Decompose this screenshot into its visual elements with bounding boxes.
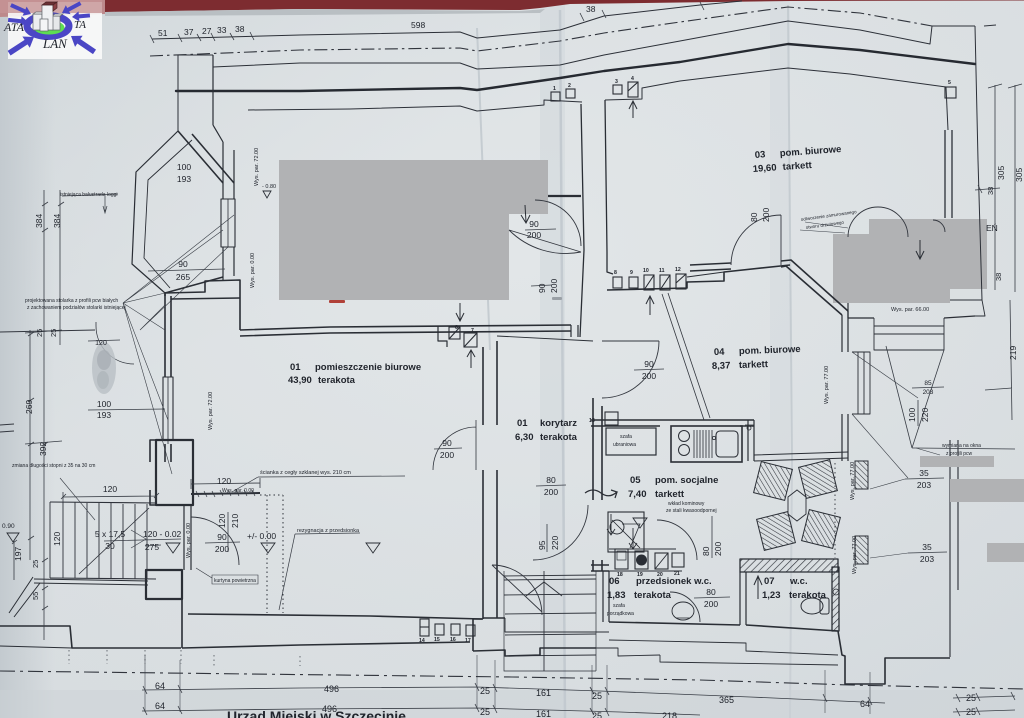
- svg-text:ze stali kwasoodpornej: ze stali kwasoodpornej: [666, 508, 717, 514]
- svg-text:90: 90: [537, 283, 547, 293]
- svg-text:25: 25: [592, 691, 602, 701]
- svg-text:Wys. par. 0.00: Wys. par. 0.00: [186, 523, 192, 558]
- svg-text:05: 05: [630, 475, 641, 486]
- svg-text:pomieszczenie biurowe: pomieszczenie biurowe: [315, 362, 421, 373]
- svg-text:15: 15: [434, 637, 440, 643]
- svg-text:z profili pcw: z profili pcw: [946, 451, 973, 457]
- svg-text:38: 38: [586, 4, 596, 14]
- svg-text:25: 25: [31, 560, 40, 568]
- svg-text:2: 2: [568, 83, 571, 89]
- svg-text:zmiana długości stopni z 35 na: zmiana długości stopni z 35 na 30 cm: [12, 463, 95, 469]
- svg-text:90: 90: [217, 532, 227, 542]
- svg-text:90: 90: [644, 359, 654, 369]
- svg-text:01: 01: [517, 418, 528, 429]
- svg-text:3: 3: [615, 79, 618, 85]
- svg-text:365: 365: [719, 695, 734, 705]
- svg-text:200: 200: [704, 599, 718, 609]
- svg-text:90: 90: [178, 259, 188, 269]
- svg-text:269: 269: [24, 400, 34, 414]
- svg-text:19: 19: [637, 572, 643, 578]
- svg-text:210: 210: [230, 514, 240, 528]
- svg-text:30: 30: [105, 541, 115, 551]
- svg-text:200: 200: [440, 450, 454, 460]
- svg-text:219: 219: [1008, 346, 1018, 360]
- svg-text:1: 1: [553, 86, 556, 92]
- svg-text:EŃ: EŃ: [986, 223, 998, 233]
- svg-text:szafa: szafa: [620, 434, 632, 440]
- svg-text:25: 25: [966, 707, 976, 717]
- svg-text:200: 200: [761, 208, 771, 222]
- svg-text:55: 55: [31, 592, 40, 600]
- svg-text:16: 16: [450, 637, 456, 643]
- svg-text:projektowana stolarka z profil: projektowana stolarka z profili pcw biał…: [25, 298, 118, 304]
- svg-text:275: 275: [145, 542, 159, 552]
- svg-text:25: 25: [480, 707, 490, 717]
- svg-text:80: 80: [701, 546, 711, 556]
- svg-text:8,37: 8,37: [712, 360, 731, 372]
- svg-text:7: 7: [471, 328, 474, 334]
- svg-text:193: 193: [97, 410, 111, 420]
- svg-text:5: 5: [948, 80, 951, 86]
- svg-text:161: 161: [536, 688, 551, 698]
- svg-text:TA: TA: [74, 19, 86, 31]
- svg-text:pom. biurowe: pom. biurowe: [739, 344, 801, 357]
- svg-text:6,30: 6,30: [515, 432, 534, 443]
- svg-text:wkład kominowy: wkład kominowy: [668, 501, 705, 507]
- svg-text:ubraniowa: ubraniowa: [613, 442, 636, 448]
- svg-text:43,90: 43,90: [288, 375, 312, 386]
- svg-text:rezygnacja z przedsionka: rezygnacja z przedsionka: [297, 528, 360, 534]
- svg-text:120: 120: [103, 484, 117, 494]
- svg-text:+/- 0.00: +/- 0.00: [247, 531, 276, 541]
- svg-text:Wys. par. 0.00: Wys. par. 0.00: [222, 488, 254, 494]
- svg-text:18: 18: [617, 572, 623, 578]
- svg-text:terakota: terakota: [318, 375, 356, 386]
- svg-text:80: 80: [706, 587, 716, 597]
- svg-text:200: 200: [642, 371, 656, 381]
- svg-text:4: 4: [631, 76, 634, 82]
- svg-text:203: 203: [917, 480, 931, 490]
- svg-text:ATA: ATA: [3, 20, 25, 34]
- svg-text:terakota: terakota: [789, 590, 827, 601]
- svg-text:14: 14: [419, 638, 425, 644]
- svg-text:80: 80: [546, 475, 556, 485]
- svg-text:tarkett: tarkett: [739, 359, 769, 371]
- svg-text:200: 200: [215, 544, 229, 554]
- svg-text:z zachowaniem podziałów stolar: z zachowaniem podziałów stolarki istniej…: [27, 305, 126, 311]
- svg-text:01: 01: [290, 362, 301, 373]
- svg-text:120: 120: [217, 514, 227, 528]
- svg-text:100: 100: [177, 162, 191, 172]
- svg-text:90: 90: [442, 438, 452, 448]
- svg-text:392: 392: [38, 442, 48, 456]
- svg-text:100: 100: [97, 399, 111, 409]
- svg-text:9: 9: [630, 270, 633, 276]
- svg-text:64: 64: [860, 699, 870, 709]
- svg-text:terakota: terakota: [540, 432, 578, 443]
- svg-text:120: 120: [52, 532, 62, 546]
- svg-text:pom. socjalne: pom. socjalne: [655, 475, 718, 486]
- svg-text:7,40: 7,40: [628, 489, 647, 500]
- svg-text:200: 200: [544, 487, 558, 497]
- svg-text:38: 38: [994, 273, 1003, 281]
- svg-text:0.90: 0.90: [2, 523, 15, 530]
- svg-text:Wys. par. 77.00: Wys. par. 77.00: [850, 462, 856, 500]
- svg-text:85: 85: [924, 380, 932, 387]
- svg-text:Urząd Miejski w Szczecinie: Urząd Miejski w Szczecinie: [227, 708, 406, 718]
- svg-text:10: 10: [643, 268, 649, 274]
- svg-text:80: 80: [749, 212, 759, 222]
- svg-text:Wys. par. 77.00: Wys. par. 77.00: [824, 366, 830, 404]
- svg-text:384: 384: [52, 214, 62, 228]
- svg-text:38: 38: [986, 187, 995, 195]
- svg-text:19,60: 19,60: [752, 162, 776, 175]
- svg-text:LAN: LAN: [42, 36, 68, 51]
- svg-text:03: 03: [754, 149, 765, 161]
- svg-text:8: 8: [614, 270, 617, 276]
- svg-text:64: 64: [155, 701, 165, 711]
- svg-text:6: 6: [455, 325, 458, 331]
- svg-text:1,23: 1,23: [762, 590, 781, 601]
- svg-text:5 x 17,5: 5 x 17,5: [95, 529, 126, 539]
- svg-text:w.c.: w.c.: [789, 576, 808, 587]
- svg-text:203: 203: [920, 554, 934, 564]
- svg-text:35: 35: [919, 468, 929, 478]
- svg-text:- 0.80: - 0.80: [262, 184, 276, 190]
- svg-text:203: 203: [923, 389, 934, 396]
- svg-text:90: 90: [529, 219, 539, 229]
- svg-text:istniejąca balustrada loggi: istniejąca balustrada loggi: [60, 192, 118, 198]
- svg-text:384: 384: [34, 214, 44, 228]
- svg-text:200: 200: [549, 279, 559, 293]
- svg-text:120: 120: [95, 340, 107, 347]
- svg-text:95: 95: [537, 540, 547, 550]
- svg-text:25: 25: [966, 693, 976, 703]
- svg-text:1,83: 1,83: [607, 590, 626, 601]
- svg-text:13: 13: [589, 418, 595, 424]
- svg-text:25: 25: [49, 329, 58, 337]
- svg-text:38: 38: [235, 24, 245, 34]
- svg-text:37: 37: [184, 27, 194, 37]
- svg-text:17: 17: [465, 638, 471, 644]
- svg-text:tarkett: tarkett: [655, 489, 685, 500]
- svg-text:51: 51: [158, 28, 168, 38]
- svg-text:04: 04: [714, 347, 726, 358]
- svg-text:25: 25: [35, 329, 44, 337]
- svg-text:120 - 0.02: 120 - 0.02: [143, 529, 182, 539]
- svg-text:200: 200: [713, 542, 723, 556]
- svg-text:496: 496: [324, 684, 339, 694]
- svg-text:tarkett: tarkett: [782, 160, 813, 173]
- svg-text:07: 07: [764, 576, 775, 587]
- svg-text:35: 35: [922, 542, 932, 552]
- svg-text:Wys. par. 72.00: Wys. par. 72.00: [208, 392, 214, 430]
- svg-text:100: 100: [907, 408, 917, 422]
- svg-text:200: 200: [527, 230, 541, 240]
- svg-text:porządkowa: porządkowa: [607, 611, 634, 617]
- svg-text:220: 220: [550, 536, 560, 550]
- svg-text:wymiana na okna: wymiana na okna: [942, 443, 981, 449]
- svg-text:33: 33: [217, 25, 227, 35]
- svg-text:64: 64: [155, 681, 165, 691]
- svg-text:218: 218: [662, 711, 677, 718]
- svg-text:11: 11: [659, 268, 665, 274]
- svg-text:Wys. par. 0.00: Wys. par. 0.00: [250, 253, 256, 288]
- svg-text:terakota: terakota: [634, 590, 672, 601]
- svg-text:ścianka z cegły szklanej wys.: ścianka z cegły szklanej wys. 210 cm: [260, 470, 351, 476]
- svg-text:Wys. par. 66.00: Wys. par. 66.00: [891, 307, 929, 313]
- svg-text:598: 598: [411, 20, 425, 30]
- svg-text:25: 25: [480, 686, 490, 696]
- svg-text:220: 220: [920, 408, 930, 422]
- svg-text:szafa: szafa: [613, 603, 625, 609]
- svg-text:193: 193: [177, 174, 191, 184]
- svg-text:305: 305: [1014, 168, 1024, 182]
- svg-text:27: 27: [202, 26, 212, 36]
- svg-text:197: 197: [13, 547, 23, 561]
- svg-text:Wys. par. 77.00: Wys. par. 77.00: [852, 536, 858, 574]
- svg-text:12: 12: [675, 267, 681, 273]
- svg-text:korytarz: korytarz: [540, 418, 577, 429]
- svg-text:21: 21: [674, 571, 680, 577]
- svg-text:305: 305: [996, 166, 1006, 180]
- svg-text:161: 161: [536, 709, 551, 718]
- svg-text:przedsionek w.c.: przedsionek w.c.: [636, 576, 712, 587]
- svg-text:20: 20: [657, 572, 663, 578]
- svg-text:Wys. par. 72.00: Wys. par. 72.00: [254, 148, 260, 186]
- svg-text:120: 120: [217, 476, 231, 486]
- svg-text:kurtyna powietrzna: kurtyna powietrzna: [214, 578, 256, 584]
- svg-text:265: 265: [176, 272, 190, 282]
- svg-text:25: 25: [592, 711, 602, 718]
